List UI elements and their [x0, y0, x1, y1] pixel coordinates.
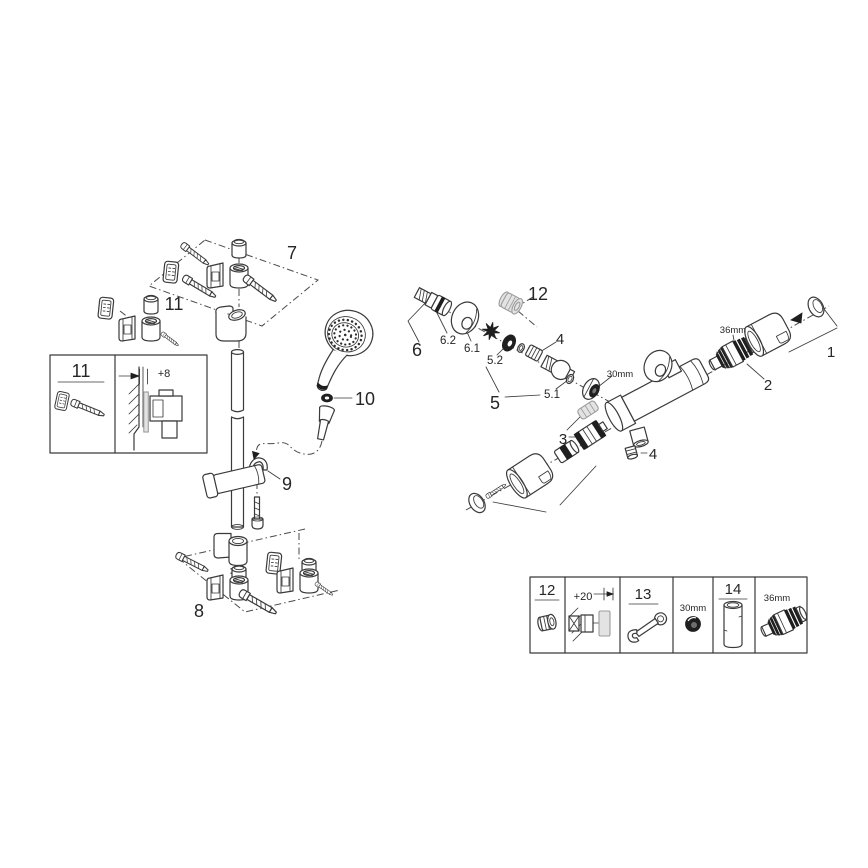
bracket-cap	[144, 295, 158, 314]
bushing-part	[525, 344, 543, 361]
wall-screw	[180, 242, 211, 267]
hose-connector	[313, 405, 335, 441]
rail-bracket-spare	[119, 316, 160, 341]
callout-2: 2	[764, 377, 772, 394]
handle-left	[503, 450, 556, 501]
exploded-parts-diagram: 6 6.2 6.1 12 4 5.2 5 5.1 30mm 36mm 2 1 3…	[0, 0, 868, 868]
legend-label: 30mm	[680, 603, 706, 614]
nut-30mm	[579, 376, 603, 403]
thermostat-assembly: 6 6.2 6.1 12 4 5.2 5 5.1 30mm 36mm 2 1 3…	[408, 284, 837, 516]
handle-cap-right	[805, 294, 827, 319]
callout-9: 9	[282, 474, 292, 494]
union-seal	[500, 333, 519, 354]
callout-1-right: 1	[827, 344, 835, 361]
hand-shower	[253, 304, 379, 459]
legend-label: 13	[635, 586, 652, 603]
callout-3: 3	[559, 431, 567, 448]
callout-6-1: 6.1	[464, 343, 480, 355]
mounting-inset-box: 11 +8	[50, 355, 207, 453]
rail-bracket-spare-bottom	[277, 568, 318, 593]
rail-bracket-top	[207, 263, 248, 288]
wall-screw	[175, 551, 210, 573]
handle-cap-left	[465, 490, 488, 515]
inset-dimension: +8	[158, 368, 171, 380]
callout-5-1: 5.1	[544, 389, 560, 401]
plug-cap-part	[497, 290, 525, 316]
legend-label: 14	[725, 581, 742, 598]
callout-7: 7	[287, 243, 297, 263]
size-30mm: 30mm	[607, 369, 633, 380]
wall-anchor	[98, 297, 114, 319]
callout-6: 6	[412, 340, 422, 360]
callout-4-bottom: 4	[649, 446, 657, 463]
small-ring	[516, 343, 526, 354]
hose-washer	[322, 394, 333, 402]
rail-elbow	[214, 534, 247, 566]
callout-4-top: 4	[556, 331, 564, 348]
arrow-icon	[791, 313, 802, 323]
legend-label: +20	[574, 591, 593, 603]
check-valve-union	[413, 285, 453, 316]
legend-label: 36mm	[764, 593, 790, 604]
callout-10: 10	[355, 389, 375, 409]
legend-label: 12	[539, 582, 556, 599]
callout-8: 8	[194, 601, 204, 621]
socket-nut-icon	[686, 617, 701, 632]
handle-screw	[485, 483, 507, 499]
callout-12: 12	[528, 284, 548, 304]
outlet-screw	[625, 446, 638, 460]
rail-glide-shell	[216, 306, 247, 341]
callout-5: 5	[490, 393, 500, 413]
inset-callout-11: 11	[72, 361, 91, 381]
bracket-cap	[232, 239, 246, 258]
legend-table: 12 +20	[530, 577, 810, 653]
callout-6-2: 6.2	[440, 335, 456, 347]
hose-curve	[256, 441, 323, 454]
size-36mm: 36mm	[720, 325, 746, 336]
parts-diagram-page: 6 6.2 6.1 12 4 5.2 5 5.1 30mm 36mm 2 1 3…	[0, 0, 868, 868]
shower-outlet	[630, 427, 649, 448]
axis-line	[120, 311, 129, 318]
extension-tube-icon	[724, 602, 742, 648]
bracket-screw	[160, 331, 179, 347]
aquadimmer-cartridge	[574, 418, 610, 450]
wall-screw	[242, 274, 278, 304]
wall-screw	[238, 589, 278, 617]
callout-5-2: 5.2	[487, 355, 503, 367]
callout-11: 11	[165, 294, 184, 314]
stop-clip	[577, 400, 600, 420]
shower-rail-tube	[232, 350, 244, 530]
